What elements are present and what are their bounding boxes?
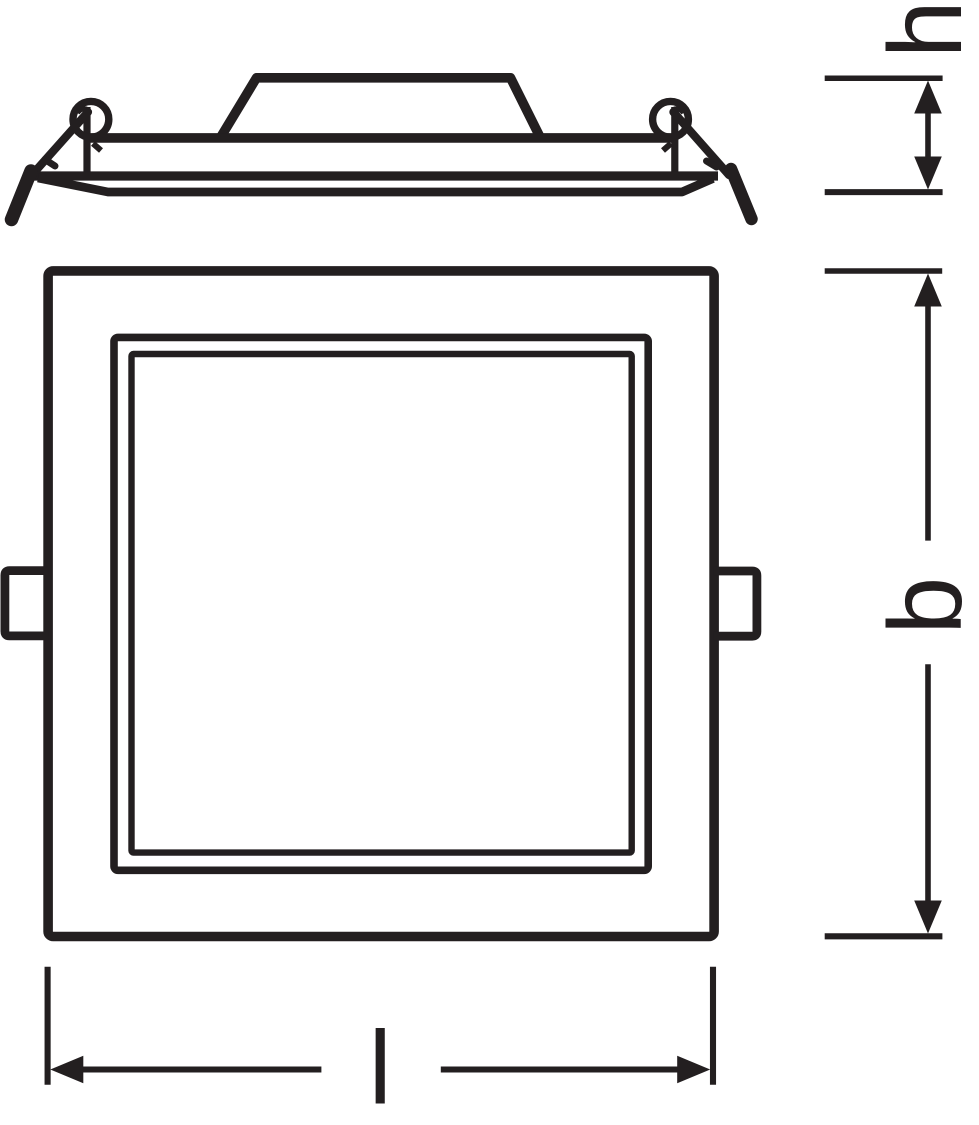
svg-text:b: b [868,577,979,635]
svg-text:l: l [369,1011,392,1125]
svg-text:h: h [868,0,979,58]
